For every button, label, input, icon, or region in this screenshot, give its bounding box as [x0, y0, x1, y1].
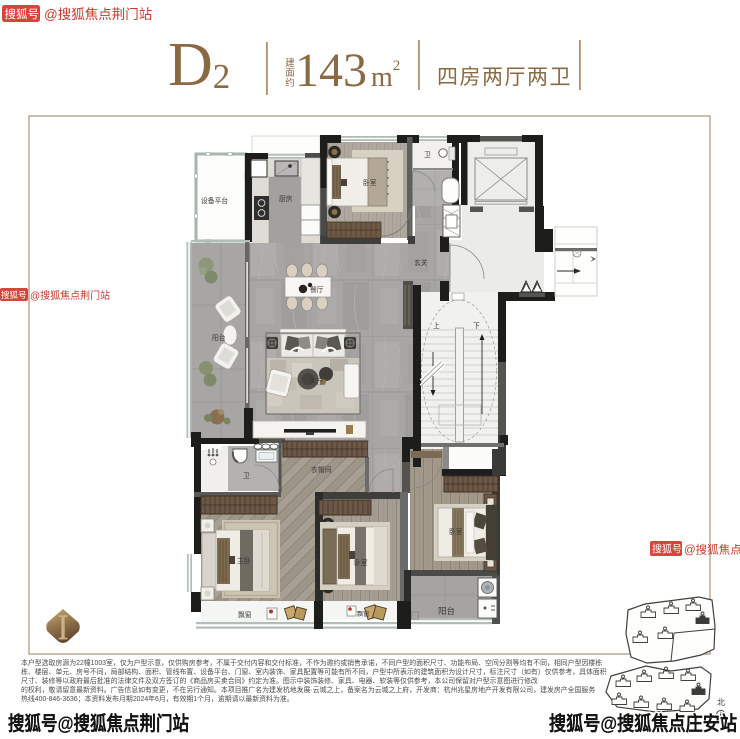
svg-text:飘窗: 飘窗 [238, 610, 252, 619]
svg-text:客厅: 客厅 [310, 377, 324, 386]
svg-text:@搜狐焦点荆门站: @搜狐焦点荆门站 [44, 7, 152, 22]
svg-text:栋、楼层、单元、房号不同，局部结构、面积、管线布置、设备平台: 栋、楼层、单元、房号不同，局部结构、面积、管线布置、设备平台、门窗、室内装饰、家… [21, 667, 607, 676]
svg-text:约: 约 [285, 77, 295, 89]
svg-text:下: 下 [473, 322, 480, 330]
svg-text:搜狐号: 搜狐号 [5, 7, 40, 21]
svg-text:卧室: 卧室 [363, 178, 377, 187]
svg-text:搜狐号@搜狐焦点庄安站: 搜狐号@搜狐焦点庄安站 [549, 712, 737, 735]
svg-text:设备平台: 设备平台 [201, 196, 228, 205]
svg-text:的权利，敬请留意最新资料。广告信息如有变更，不在另行通知。本: 的权利，敬请留意最新资料。广告信息如有变更，不在另行通知。本项目推广名为建发杭地… [21, 685, 595, 694]
svg-text:阳台: 阳台 [212, 333, 226, 342]
svg-text:阳台: 阳台 [438, 606, 455, 616]
svg-text:卫: 卫 [243, 472, 250, 480]
svg-text:搜狐号@搜狐焦点荆门站: 搜狐号@搜狐焦点荆门站 [8, 712, 189, 735]
svg-text:厨房: 厨房 [279, 194, 293, 203]
svg-text:衣帽间: 衣帽间 [311, 465, 332, 474]
svg-text:玄关: 玄关 [414, 258, 428, 267]
svg-text:飘窗: 飘窗 [357, 610, 369, 618]
svg-text:卧室: 卧室 [354, 558, 368, 567]
svg-text:尺寸、装修等以政府最后批准的法律文件及双方签订的《商品房买卖: 尺寸、装修等以政府最后批准的法律文件及双方签订的《商品房买卖合同》约定为准。图示… [21, 676, 538, 685]
svg-text:@搜狐焦点庄安站: @搜狐焦点庄安站 [684, 543, 740, 557]
svg-text:餐厅: 餐厅 [310, 285, 324, 294]
svg-text:上: 上 [433, 321, 440, 330]
svg-text:卧室: 卧室 [449, 527, 463, 536]
svg-text:本户型选取房源为22幢1003室，仅为户型示意，仅供购房参考: 本户型选取房源为22幢1003室，仅为户型示意，仅供购房参考，不属于交付内容和交… [21, 658, 602, 667]
svg-text:卫: 卫 [424, 151, 431, 159]
svg-text:搜狐号: 搜狐号 [1, 290, 27, 300]
svg-text:北: 北 [717, 698, 725, 707]
svg-text:@搜狐焦点荆门站: @搜狐焦点荆门站 [30, 289, 110, 302]
svg-text:主卧: 主卧 [237, 556, 251, 565]
svg-text:搜狐号: 搜狐号 [652, 543, 682, 556]
svg-text:热线400-846-3636；本资料发布月期2024年6月，: 热线400-846-3636；本资料发布月期2024年6月，有效期1个月，逾期请… [21, 694, 294, 703]
svg-text:四房两厅两卫: 四房两厅两卫 [437, 66, 572, 89]
